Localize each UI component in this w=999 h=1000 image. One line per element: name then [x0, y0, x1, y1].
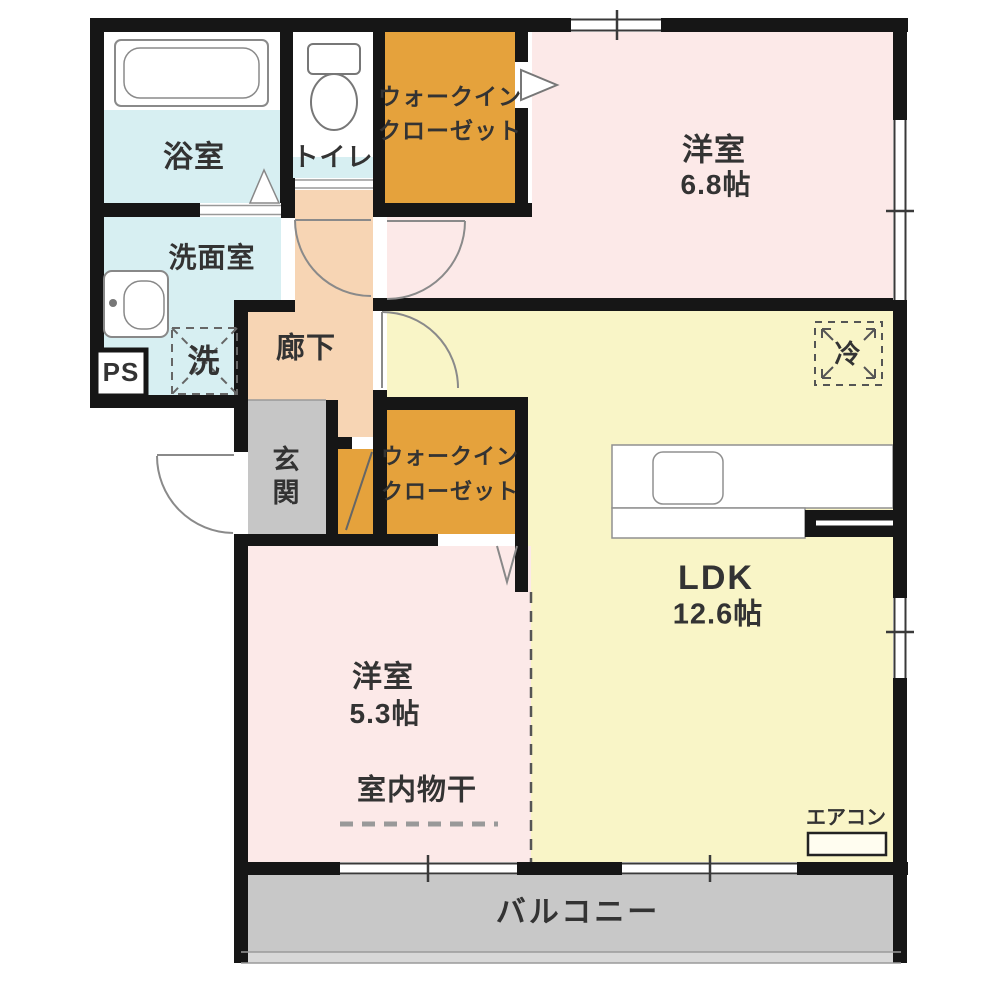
toilet-icon	[308, 44, 360, 130]
label-wic-middle-line1: ウォークイン	[381, 446, 519, 468]
label-wic-top-line1: ウォークイン	[378, 86, 522, 109]
label-aircon: エアコン	[806, 808, 886, 828]
floor-plan: 浴室 トイレ ウォークイン クローゼット 洋室 6.8帖 洗面室 洗 PS 廊下…	[0, 0, 999, 1000]
label-indoor-drying: 室内物干	[357, 777, 477, 806]
label-ldk-name: LDK	[678, 561, 754, 595]
label-bedroom-68-name: 洋室	[682, 135, 746, 166]
area-wic-middle	[386, 410, 515, 534]
label-hallway: 廊下	[276, 335, 336, 364]
label-bedroom-53-name: 洋室	[352, 663, 414, 693]
label-washer: 洗	[187, 345, 220, 377]
label-washroom: 洗面室	[168, 244, 255, 272]
label-wic-middle-line2: クローゼット	[381, 481, 519, 503]
label-balcony: バルコニー	[496, 898, 660, 928]
label-pipe-space: PS	[103, 359, 140, 385]
kitchen-counter	[612, 445, 893, 538]
label-toilet: トイレ	[292, 144, 373, 170]
label-bedroom-53-size: 5.3帖	[350, 700, 421, 728]
area-hallway-upper	[295, 190, 373, 312]
label-ldk-size: 12.6帖	[673, 601, 763, 630]
label-refrigerator: 冷	[834, 341, 861, 367]
area-bedroom-68-ext	[387, 217, 532, 298]
bathtub-icon	[115, 40, 268, 106]
washbasin-icon	[104, 271, 168, 337]
aircon-box	[808, 833, 886, 855]
label-bathroom: 浴室	[163, 143, 225, 173]
label-bedroom-68-size: 6.8帖	[681, 171, 752, 199]
area-hallway-nook	[338, 400, 375, 437]
label-wic-top-line2: クローゼット	[378, 120, 522, 143]
entrance-door	[157, 455, 234, 533]
area-ldk-upper	[387, 311, 893, 400]
kitchen-sink-icon	[653, 452, 723, 504]
label-genkan: 玄関	[270, 445, 297, 511]
area-balcony-lip	[241, 952, 901, 963]
